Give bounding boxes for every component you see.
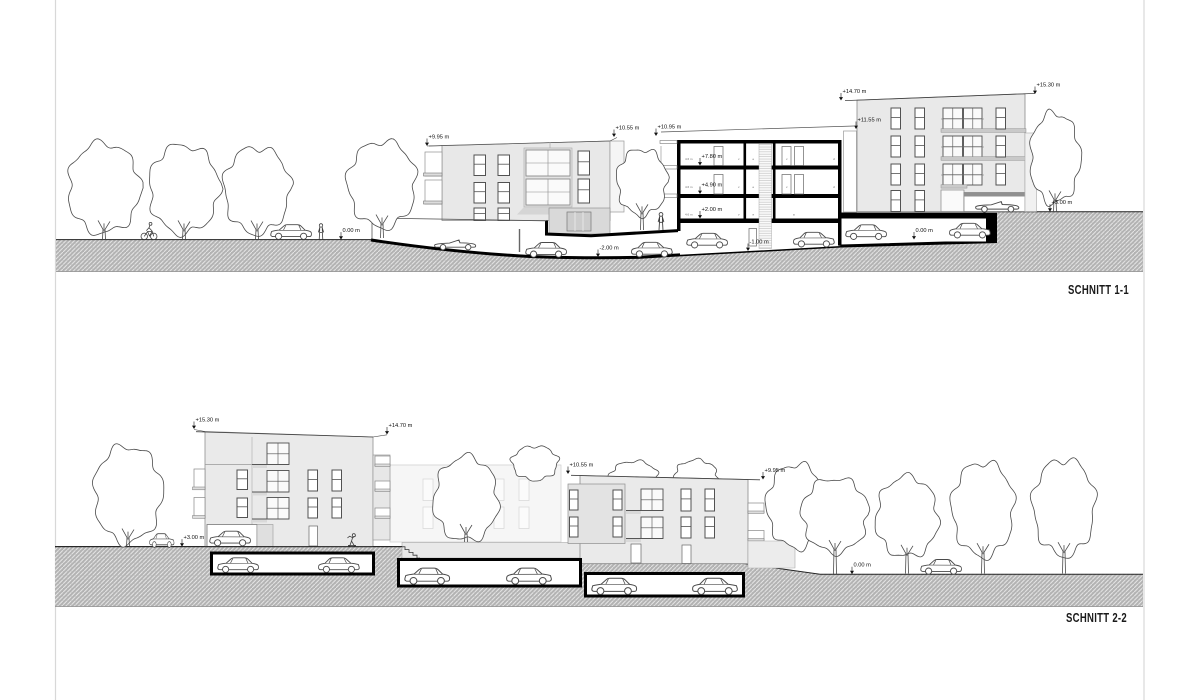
svg-text:0.00 m: 0.00 m bbox=[854, 563, 872, 569]
svg-text:+2.00 m: +2.00 m bbox=[702, 207, 723, 213]
svg-text:+10.95 m: +10.95 m bbox=[658, 125, 682, 131]
svg-text:-1.00 m: -1.00 m bbox=[750, 240, 770, 246]
svg-text:+11.55 m: +11.55 m bbox=[858, 118, 882, 124]
svg-text:+9.95 m: +9.95 m bbox=[765, 468, 786, 474]
svg-text:+10.55 m: +10.55 m bbox=[570, 463, 594, 469]
svg-text:4.6 m: 4.6 m bbox=[685, 213, 693, 217]
svg-text:+15.30 m: +15.30 m bbox=[196, 418, 220, 424]
svg-text:0.00 m: 0.00 m bbox=[916, 228, 934, 234]
svg-text:-2.00 m: -2.00 m bbox=[600, 246, 620, 252]
svg-text:+3.00 m: +3.00 m bbox=[184, 535, 205, 541]
svg-text:4.6 m: 4.6 m bbox=[685, 157, 693, 161]
svg-text:+3.00 m: +3.00 m bbox=[1052, 200, 1073, 206]
svg-text:4.6 m: 4.6 m bbox=[685, 185, 693, 189]
svg-text:+4.90 m: +4.90 m bbox=[702, 183, 723, 189]
svg-text:0.00 m: 0.00 m bbox=[343, 228, 361, 234]
svg-text:+7.80 m: +7.80 m bbox=[702, 154, 723, 160]
svg-text:+14.70 m: +14.70 m bbox=[389, 423, 413, 429]
svg-text:+15.30 m: +15.30 m bbox=[1037, 83, 1061, 89]
svg-text:+14.70 m: +14.70 m bbox=[843, 89, 867, 95]
svg-text:SCHNITT 1-1: SCHNITT 1-1 bbox=[1068, 282, 1129, 297]
svg-text:+9.95 m: +9.95 m bbox=[429, 135, 450, 141]
svg-text:+10.55 m: +10.55 m bbox=[616, 126, 640, 132]
svg-text:SCHNITT 2-2: SCHNITT 2-2 bbox=[1066, 610, 1127, 625]
